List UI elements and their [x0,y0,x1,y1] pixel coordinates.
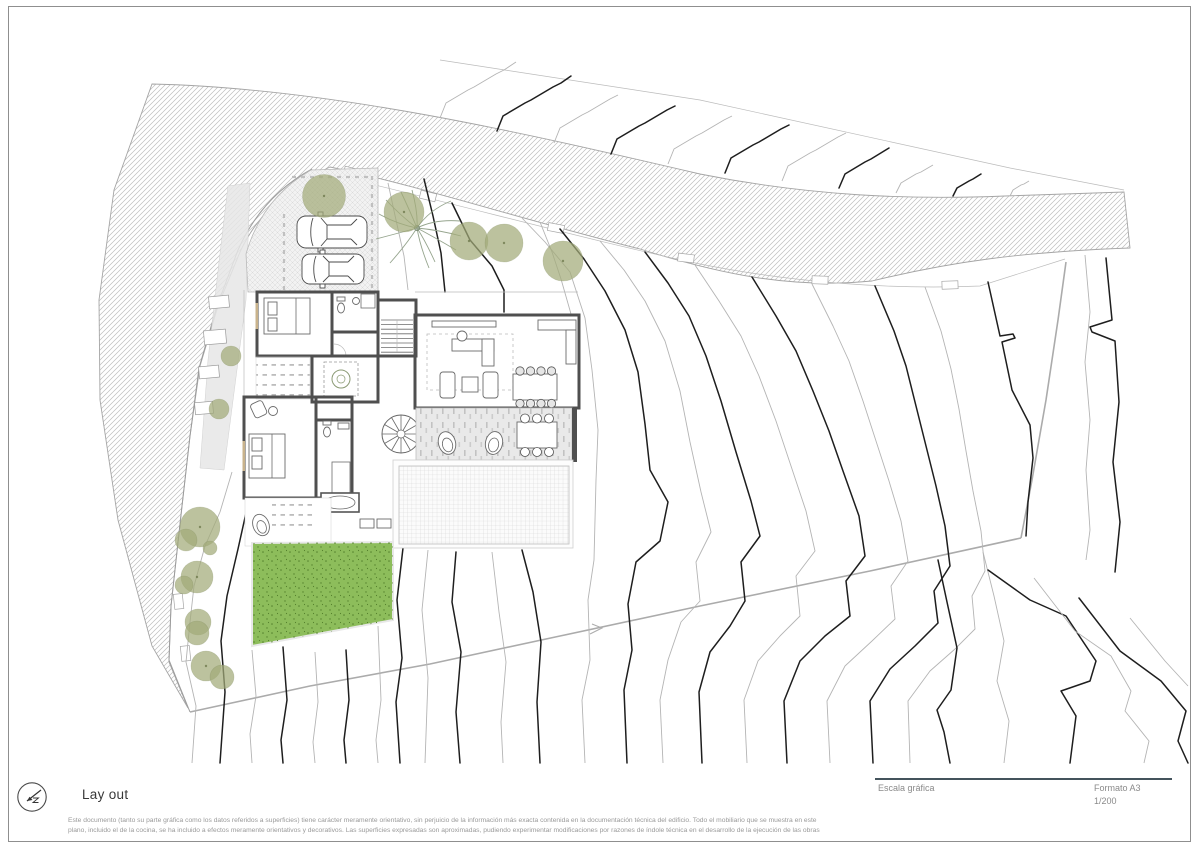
scale-value: 1/200 [1094,796,1117,806]
sheet-title: Lay out [82,787,128,802]
drawing-sheet: Lay out Este documento (tanto su parte g… [0,0,1200,848]
sheet-border [8,6,1191,842]
disclaimer-line-1: Este documento (tanto su parte gráfica c… [68,817,817,824]
title-block-divider [875,778,1172,780]
disclaimer-line-2: plano, incluido el de la cocina, se ha i… [68,827,820,834]
format-label: Formato A3 [1094,783,1141,793]
scale-bar-label: Escala gráfica [878,783,935,793]
north-arrow-icon [14,780,50,816]
